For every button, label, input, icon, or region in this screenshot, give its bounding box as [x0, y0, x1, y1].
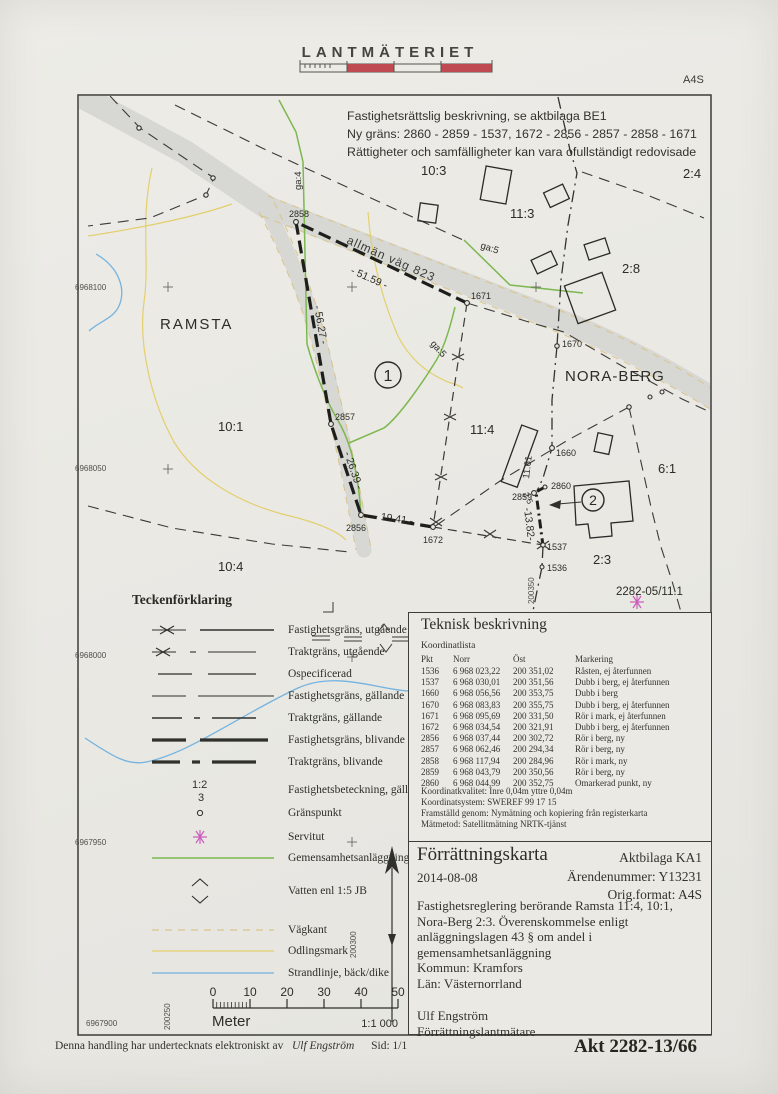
description-line: Fastighetsreglering berörande Ramsta 11:…	[417, 898, 673, 914]
x-solid-icon	[152, 622, 280, 638]
legend-item-label: Gränspunkt	[288, 805, 342, 821]
case-references: Aktbilaga KA1 Ärendenummer: Y13231 Orig.…	[567, 849, 702, 905]
meas-label: - 19.41 -	[374, 510, 415, 527]
cell: 6 968 083,83	[453, 700, 500, 710]
cell: Omarkerad punkt, ny	[575, 778, 652, 788]
cell: 1537	[421, 677, 439, 687]
point-label: 1671	[471, 291, 491, 301]
scale-tick-label: 20	[275, 985, 299, 999]
legend-item-label: Vägkant	[288, 922, 327, 938]
legend-title: Teckenförklaring	[132, 592, 232, 608]
point-label: 1537	[547, 542, 567, 552]
cell: 2857	[421, 744, 439, 754]
meas-label: 11.61	[521, 455, 535, 479]
akt-number: Akt 2282-13/66	[574, 1036, 697, 1058]
lantmateriet-logo: LANTMÄTERIET	[290, 44, 490, 61]
cell: 6 968 023,22	[453, 666, 500, 676]
description-line: gemensamhetsanläggning	[417, 945, 673, 961]
scale-tick-label: 40	[349, 985, 373, 999]
description-line: anläggningslagen 43 § om andel i	[417, 929, 673, 945]
place-label: 11:3	[510, 206, 534, 221]
legal-notice: Fastighetsrättslig beskrivning, se aktbi…	[347, 107, 709, 161]
scale-tick-label: 10	[238, 985, 262, 999]
scale-tick-label: 0	[201, 985, 225, 999]
place-label: 2:3	[593, 552, 611, 567]
line-green-icon	[152, 850, 280, 866]
cell: 200 351,56	[513, 677, 554, 687]
cell: Rör i berg, ny	[575, 744, 625, 754]
column-header: Pkt	[421, 654, 433, 664]
building	[480, 166, 512, 204]
place-label: 10:3	[421, 163, 446, 178]
scale-tick-label: 50	[386, 985, 410, 999]
legend-item-label: Traktgräns, gällande	[288, 710, 382, 726]
signature-prefix: Denna handling har undertecknats elektro…	[55, 1040, 283, 1052]
scale-ratio: 1:1 000	[350, 1018, 398, 1030]
grid-label: 200300	[349, 931, 358, 958]
legend-item-label: Fastighetsgräns, blivande	[288, 732, 405, 748]
building	[574, 481, 633, 538]
cell: 1672	[421, 722, 439, 732]
cell: 6 968 037,44	[453, 733, 500, 743]
svg-text:3: 3	[198, 792, 204, 804]
legend-item-label: Fastighetsgräns, utgående	[288, 622, 407, 638]
notice-line: Rättigheter och samfälligheter kan vara …	[347, 143, 709, 161]
legend-item-label: Fastighetsgräns, gällande	[288, 688, 404, 704]
technical-title: Teknisk beskrivning	[421, 616, 547, 634]
cell: Dubb i berg, ej återfunnen	[575, 700, 670, 710]
svg-text:2: 2	[589, 492, 597, 508]
column-header: Öst	[513, 654, 526, 664]
cell: 6 968 095,69	[453, 711, 500, 721]
cell: Dubb i berg, ej återfunnen	[575, 722, 670, 732]
technical-note: Framställd genom: Nymätning och kopierin…	[421, 808, 647, 818]
scanned-cadastral-map: 12 10:32:411:32:8RAMSTANORA-BERG10:111:4…	[0, 0, 778, 1094]
place-label: 10:4	[218, 559, 243, 574]
place-label: 2282-05/11.1	[616, 586, 683, 598]
map-title: Förrättningskarta	[417, 844, 548, 866]
cell: 200 331,50	[513, 711, 554, 721]
signature-line: Denna handling har undertecknats elektro…	[55, 1040, 407, 1052]
grid-label: 200350	[527, 577, 536, 604]
place-label: 2:4	[683, 166, 701, 181]
line-blue-icon	[152, 965, 280, 981]
column-header: Markering	[575, 654, 613, 664]
point-label: 1536	[547, 563, 567, 573]
legend-item-label: Servitut	[288, 829, 324, 845]
point-label: 2858	[289, 209, 309, 219]
dash-long-icon	[152, 688, 280, 704]
signer-name: Ulf Engström	[292, 1040, 354, 1052]
grid-label: 6967900	[86, 1019, 118, 1028]
place-label: 6:1	[658, 461, 676, 476]
grid-label: 6968100	[75, 283, 107, 292]
building	[584, 238, 610, 260]
place-label: 10:1	[218, 419, 243, 434]
technical-note: Koordinatsystem: SWEREF 99 17 15	[421, 797, 557, 807]
cell: Rör i berg, ny	[575, 767, 625, 777]
buildings	[418, 166, 633, 538]
meas-label: -13.82-	[521, 507, 537, 542]
meas-label: - 51.59 -	[349, 265, 390, 292]
place-label: 2:8	[622, 261, 640, 276]
lan: Län: Västernorrland	[417, 976, 673, 992]
cell: 200 350,56	[513, 767, 554, 777]
building	[594, 433, 613, 455]
cell: Rör i mark, ej återfunnen	[575, 711, 666, 721]
samf-area-marker: 2	[582, 489, 604, 511]
cell: Rör i berg, ny	[575, 733, 625, 743]
building	[418, 203, 438, 223]
trakt-boundary	[533, 97, 577, 611]
surveyor-title: Förrättningslantmätare	[417, 1024, 535, 1040]
road	[266, 206, 364, 550]
cell: Rör i mark, ny	[575, 756, 628, 766]
road	[70, 90, 265, 206]
samf-pointer-arrow	[549, 500, 581, 509]
cell: 6 968 056,56	[453, 688, 500, 698]
grid-label: 200250	[163, 1003, 172, 1030]
legend-item-label: Traktgräns, blivande	[288, 754, 383, 770]
arendenummer: Ärendenummer: Y13231	[567, 868, 702, 887]
cell: 6 968 034,54	[453, 722, 500, 732]
cell: 1536	[421, 666, 439, 676]
place-label: NORA-BERG	[565, 368, 665, 385]
cell: 6 968 030,01	[453, 677, 500, 687]
dash-thick-icon	[152, 732, 280, 748]
cell: 6 968 062,46	[453, 744, 500, 754]
point-label: 2856	[346, 523, 366, 533]
column-header: Norr	[453, 654, 470, 664]
technical-description-box: Teknisk beskrivning Koordinatlista PktNo…	[408, 612, 712, 841]
ga-label: ga:5	[479, 240, 500, 256]
coordinate-list-title: Koordinatlista	[421, 641, 475, 651]
cell: 6 968 043,79	[453, 767, 500, 777]
line-yellow-icon	[152, 943, 280, 959]
cell: 200 351,02	[513, 666, 554, 676]
scale-unit: Meter	[212, 1013, 250, 1030]
cell: Dubb i berg, ej återfunnen	[575, 677, 670, 687]
cell: 200 284,96	[513, 756, 554, 766]
legend-item-label: Vatten enl 1:5 JB	[288, 876, 367, 906]
cell: 2858	[421, 756, 439, 766]
point-label: 1672	[423, 535, 443, 545]
map-description: Fastighetsreglering berörande Ramsta 11:…	[417, 898, 673, 991]
ga-label: ga:4	[293, 172, 304, 191]
samf-area-marker: 1	[375, 362, 401, 388]
notice-line: Fastighetsrättslig beskrivning, se aktbi…	[347, 107, 709, 125]
svg-text:1:2: 1:2	[192, 779, 207, 791]
description-line: Nora-Berg 2:3. Överenskommelse enligt	[417, 914, 673, 930]
cell: 1670	[421, 700, 439, 710]
grid-label: 6968000	[75, 651, 107, 660]
grid-label: 6967950	[75, 838, 107, 847]
logo-scalebar	[300, 60, 492, 72]
technical-note: Koordinatkvalitet: Inre 0,04m yttre 0,04…	[421, 786, 572, 796]
title-block: Förrättningskarta 2014-08-08 Aktbilaga K…	[408, 841, 712, 1035]
scale-tick-label: 30	[312, 985, 336, 999]
cell: 200 302,72	[513, 733, 554, 743]
place-label: RAMSTA	[160, 316, 233, 333]
circle-icon	[152, 805, 280, 821]
building	[544, 184, 570, 207]
cell: Dubb i berg	[575, 688, 618, 698]
scale-ruler	[213, 999, 398, 1008]
legend-item-label: Ospecificerad	[288, 666, 352, 682]
map-date: 2014-08-08	[417, 870, 478, 886]
dash-tan-icon	[152, 922, 280, 938]
x-dashdot-icon	[152, 644, 280, 660]
cell: Råsten, ej återfunnen	[575, 666, 651, 676]
svg-text:1: 1	[384, 368, 393, 385]
cell: 200 355,75	[513, 700, 554, 710]
point-label: 1660	[556, 448, 576, 458]
cell: 200 321,91	[513, 722, 554, 732]
cell: 200 294,34	[513, 744, 554, 754]
grid-label: 6968050	[75, 464, 107, 473]
paper-format-label: A4S	[683, 74, 704, 86]
legend-item-label: Odlingsmark	[288, 943, 348, 959]
cell: 2859	[421, 767, 439, 777]
dashdot-thick-icon	[152, 754, 280, 770]
dash-short-icon	[152, 666, 280, 682]
cell: 2856	[421, 733, 439, 743]
cell: 6 968 117,94	[453, 756, 500, 766]
legend-item-label: Gemensamhetsanläggning	[288, 850, 409, 866]
point-label: 1670	[562, 339, 582, 349]
notice-line: Ny gräns: 2860 - 2859 - 1537, 1672 - 285…	[347, 125, 709, 143]
cell: 1660	[421, 688, 439, 698]
legend-item-label: Strandlinje, bäck/dike	[288, 965, 389, 981]
aktbilaga: Aktbilaga KA1	[567, 849, 702, 868]
asterisk-icon	[152, 829, 280, 845]
place-label: 11:4	[470, 422, 494, 437]
chevrons-icon	[152, 876, 280, 906]
cell: 200 353,75	[513, 688, 554, 698]
kommun: Kommun: Kramfors	[417, 960, 673, 976]
technical-note: Mätmetod: Satellitmätning NRTK-tjänst	[421, 819, 566, 829]
cell: 1671	[421, 711, 439, 721]
surveyor-name: Ulf Engström	[417, 1008, 488, 1024]
point-label: 2857	[335, 412, 355, 422]
beteckning-icon: 1:23	[152, 776, 280, 804]
building	[531, 251, 557, 274]
legend-item-label: Traktgräns, utgående	[288, 644, 385, 660]
point-label: 2860	[551, 481, 571, 491]
dashdot-thin-icon	[152, 710, 280, 726]
page-indicator: Sid: 1/1	[371, 1040, 407, 1052]
